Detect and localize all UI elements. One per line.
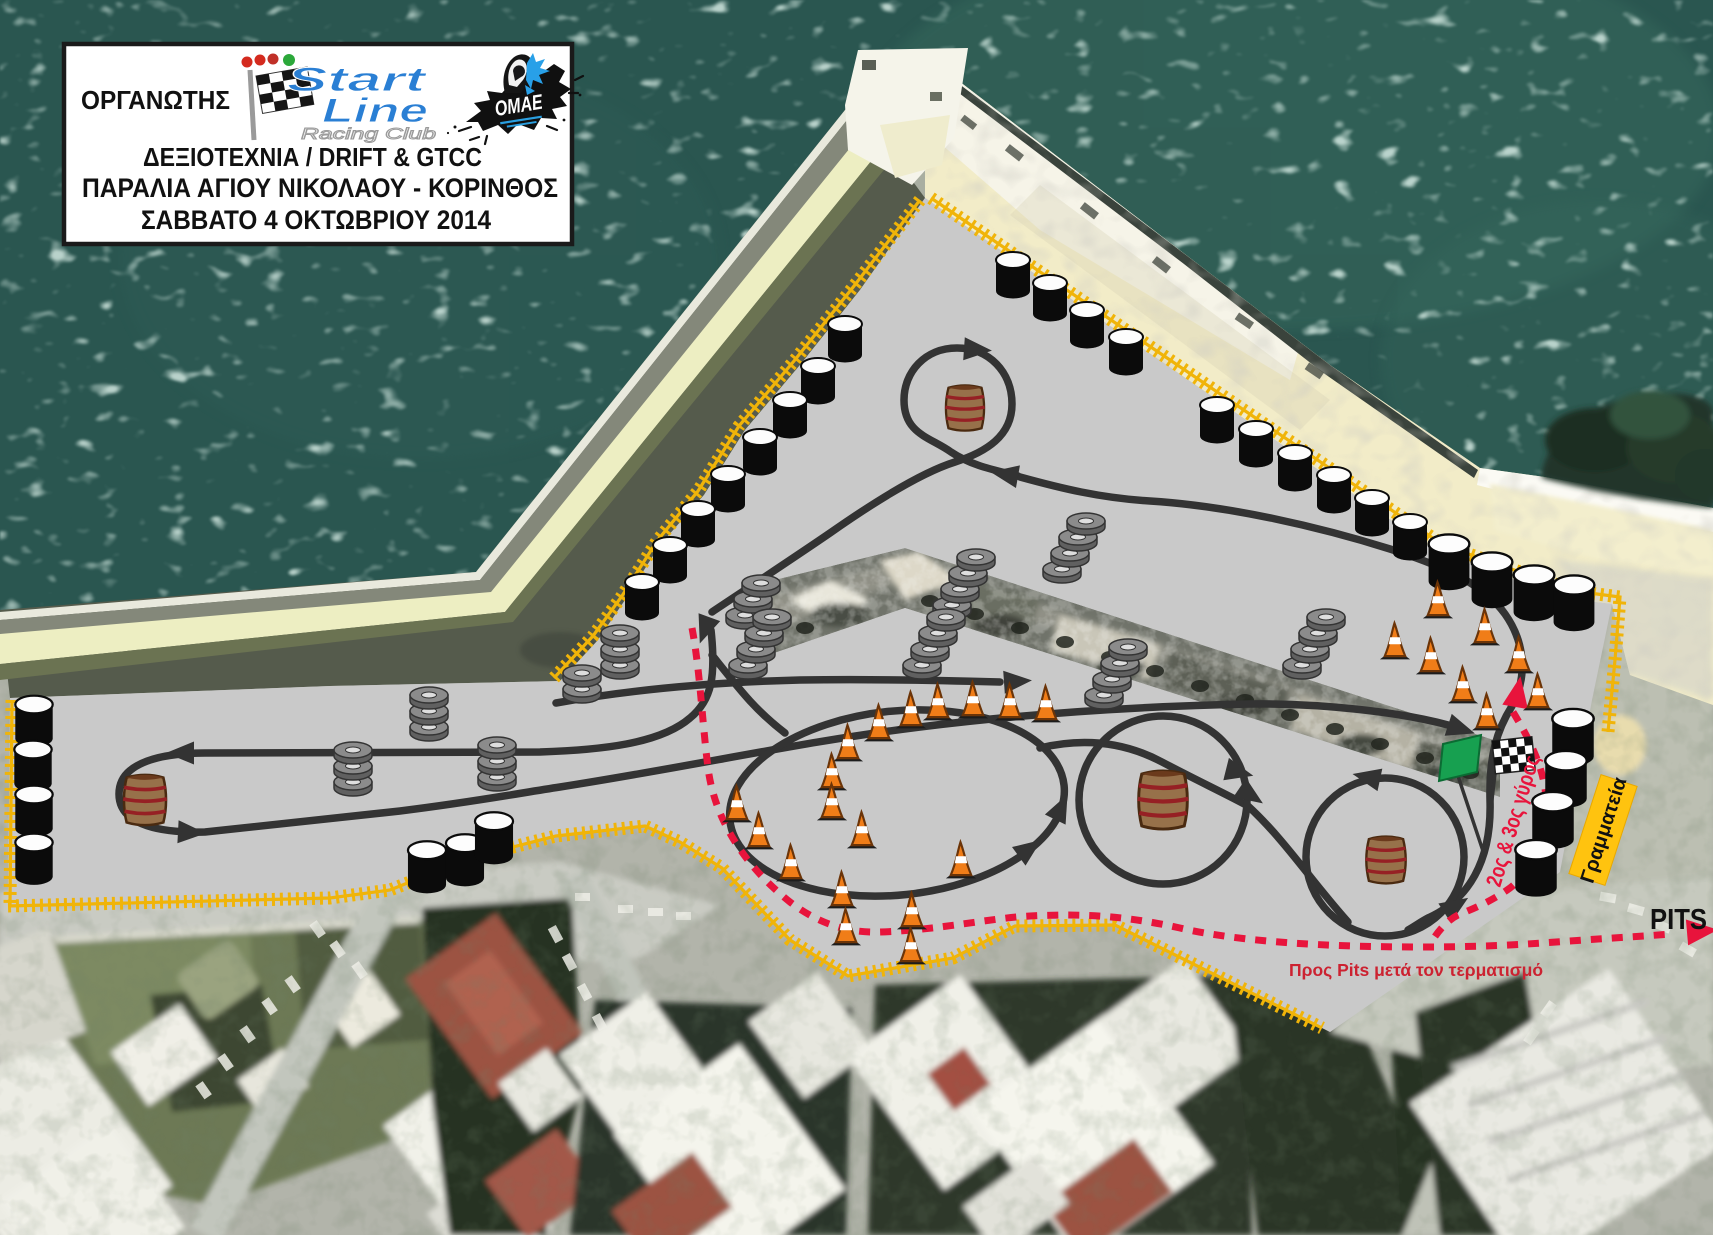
svg-text:ΔΕΞΙΟΤΕΧΝΙΑ / DRIFT & GTCC: ΔΕΞΙΟΤΕΧΝΙΑ / DRIFT & GTCC xyxy=(143,142,482,172)
svg-text:Racing Club: Racing Club xyxy=(301,126,436,143)
svg-text:ΠΑΡΑΛΙΑ ΑΓΙΟΥ ΝΙΚΟΛΑΟΥ - ΚΟΡΙΝ: ΠΑΡΑΛΙΑ ΑΓΙΟΥ ΝΙΚΟΛΑΟΥ - ΚΟΡΙΝΘΟΣ xyxy=(82,173,558,203)
svg-text:Line: Line xyxy=(322,92,428,130)
svg-text:Προς Pits μετά τον τερματισμό: Προς Pits μετά τον τερματισμό xyxy=(1289,960,1543,980)
svg-text:PITS: PITS xyxy=(1650,904,1707,936)
svg-text:ΣΑΒΒΑΤΟ 4 ΟΚΤΩΒΡΙΟΥ 2014: ΣΑΒΒΑΤΟ 4 ΟΚΤΩΒΡΙΟΥ 2014 xyxy=(141,205,491,235)
svg-text:ΟΡΓΑΝΩΤΗΣ: ΟΡΓΑΝΩΤΗΣ xyxy=(81,85,230,115)
